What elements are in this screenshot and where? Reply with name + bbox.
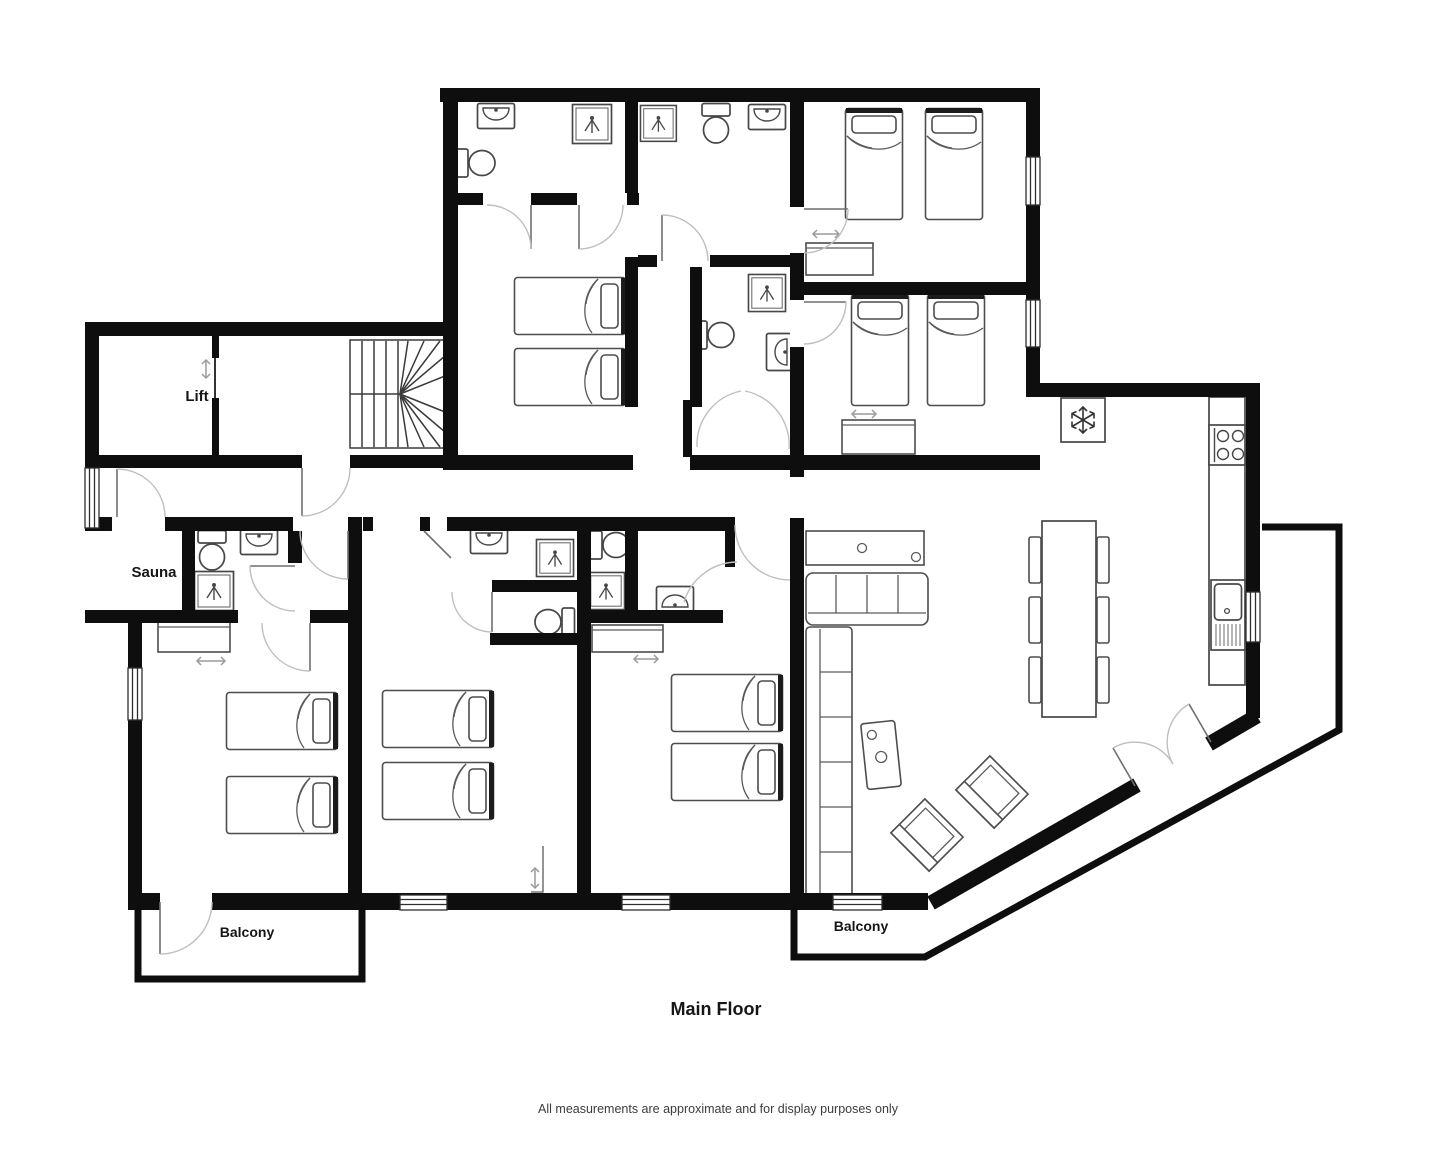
wardrobe [842,410,915,454]
shower-room-inner [695,274,792,370]
sink-icon [478,104,515,129]
bed [926,109,983,220]
bed [672,675,783,732]
sofa [806,573,928,625]
fridge-icon [1061,398,1105,442]
wardrobe [592,625,663,663]
window [1246,592,1260,642]
bed [383,763,494,820]
corner-sofa [806,627,852,899]
labels: Lift Sauna Balcony Balcony Main Floor Al… [131,388,898,1116]
floor-plan-page: Lift Sauna Balcony Balcony Main Floor Al… [0,0,1440,1162]
lounge-chair [956,756,1028,828]
lounge-chair [891,799,963,871]
sink-icon [657,587,694,612]
bed [852,295,909,406]
bed [846,109,903,220]
stove-unit [861,720,902,789]
bed [672,744,783,801]
sink-icon [241,530,278,555]
sauna-label: Sauna [131,564,177,581]
toilet-icon [198,531,226,571]
page-title: Main Floor [671,999,762,1019]
window [1026,300,1040,347]
toilet-icon [535,608,575,636]
window [833,895,882,910]
living-area [806,531,1028,899]
kitchen-sink-icon [1211,580,1245,650]
shower-icon [536,539,573,576]
window [400,895,447,910]
window [622,895,670,910]
bathroom-topmiddle [640,104,785,144]
toilet-icon [590,531,630,559]
ensuite-bedroom-centre [587,531,693,612]
balcony-right-label: Balcony [834,918,889,934]
bed [227,777,338,834]
staircase [350,340,445,448]
wardrobe [806,230,873,275]
kitchen-area [1029,397,1245,717]
window [128,668,142,720]
window [1026,157,1040,205]
shower-icon [640,105,676,141]
bathroom-sauna-wing [195,530,278,611]
sink-icon [767,334,792,371]
sink-icon [749,105,786,130]
slide-marker [531,846,543,892]
shower-icon [587,572,624,609]
dining-table [1029,521,1109,717]
shower-icon [573,105,612,144]
floor-plan-canvas: Lift Sauna Balcony Balcony Main Floor Al… [0,0,1440,1162]
disclaimer-text: All measurements are approximate and for… [538,1102,899,1116]
fixtures-layer [158,104,1245,900]
shower-icon [748,274,785,311]
bed [515,349,626,406]
bathroom-topleft [456,104,612,178]
bed [227,693,338,750]
bed [383,691,494,748]
balcony-left-label: Balcony [220,924,275,940]
balcony-left-outline [138,908,362,979]
shower-icon [195,572,234,611]
bed [515,278,626,335]
toilet-icon [702,104,730,144]
stove-icon [1209,425,1245,465]
lift-label: Lift [185,388,208,405]
toilet-icon [456,149,496,177]
sideboard [806,531,924,565]
wardrobe [158,622,230,665]
window [85,468,99,528]
lift-arrow-icon [202,360,210,378]
bed [928,295,985,406]
sink-icon [471,529,508,554]
